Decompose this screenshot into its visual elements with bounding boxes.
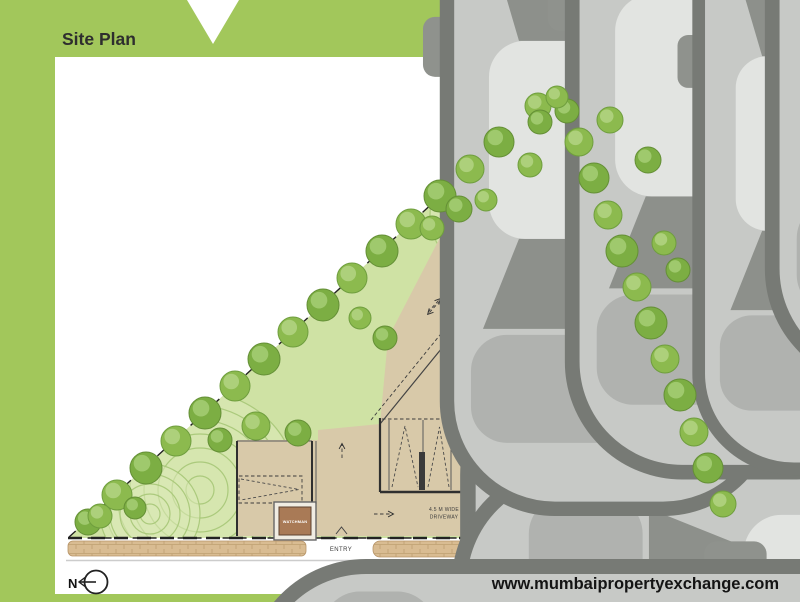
site-plan-page: Site Plan R.G 1103.54 MT 6M WIDE DRIVEWA… bbox=[0, 0, 800, 602]
watchman-label: WATCHMAN bbox=[283, 519, 307, 524]
driveway-45-left-label-1: 4.5 M WIDE bbox=[429, 507, 459, 513]
page-title: Site Plan bbox=[62, 29, 136, 49]
site-plan-drawing: Site Plan R.G 1103.54 MT 6M WIDE DRIVEWA… bbox=[0, 0, 800, 602]
entry-label: ENTRY bbox=[330, 547, 352, 553]
north-label: N bbox=[68, 576, 77, 591]
website-watermark: www.mumbaipropertyexchange.com bbox=[491, 575, 779, 593]
driveway-45-left-label-2: DRIVEWAY bbox=[430, 515, 459, 521]
